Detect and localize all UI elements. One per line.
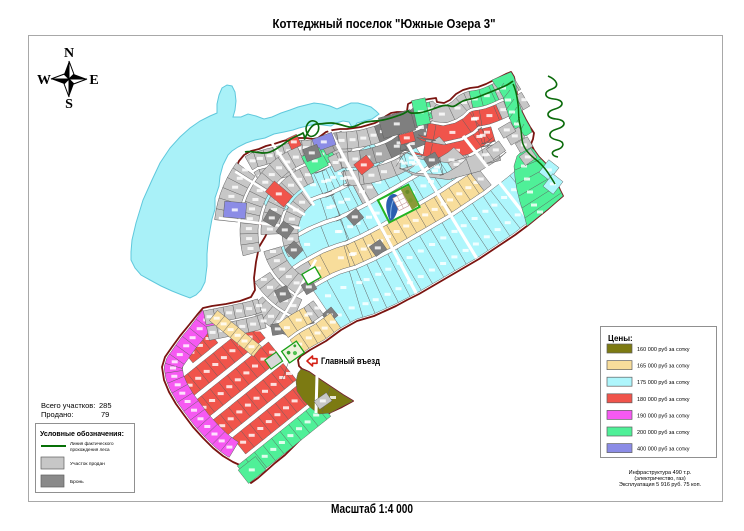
svg-text:S: S (65, 97, 73, 112)
svg-text:Всего участков:: Всего участков: (41, 401, 95, 410)
svg-text:200 000 руб за сотку: 200 000 руб за сотку (637, 430, 690, 436)
svg-text:79: 79 (101, 410, 109, 419)
svg-text:285: 285 (99, 401, 112, 410)
svg-text:Линия фактического: Линия фактического (70, 441, 114, 446)
svg-text:Главный въезд: Главный въезд (321, 356, 380, 367)
svg-text:180 000 руб за сотку: 180 000 руб за сотку (637, 397, 690, 403)
svg-text:165 000 руб за сотку: 165 000 руб за сотку (637, 364, 690, 370)
svg-text:W: W (37, 73, 51, 88)
svg-text:Условные обозначения:: Условные обозначения: (40, 430, 124, 438)
svg-text:прохождения леса: прохождения леса (70, 447, 110, 452)
svg-text:190 000 руб за сотку: 190 000 руб за сотку (637, 413, 690, 419)
svg-text:N: N (64, 46, 74, 61)
svg-text:Масштаб 1:4 000: Масштаб 1:4 000 (331, 502, 413, 516)
svg-text:Продано:: Продано: (41, 410, 74, 419)
svg-text:160 000 руб за сотку: 160 000 руб за сотку (637, 347, 690, 353)
svg-text:Цены:: Цены: (608, 334, 633, 343)
svg-text:Коттеджный поселок "Южные Озер: Коттеджный поселок "Южные Озера 3" (273, 16, 496, 31)
svg-text:Участок продан: Участок продан (70, 461, 105, 467)
svg-text:175 000 руб за сотку: 175 000 руб за сотку (637, 380, 690, 386)
svg-text:E: E (89, 73, 98, 88)
svg-text:Бронь: Бронь (70, 479, 84, 485)
svg-text:400 000 руб за сотку: 400 000 руб за сотку (637, 447, 690, 453)
svg-text:Эксплуатация 5 916 руб. 75 коп: Эксплуатация 5 916 руб. 75 коп. (619, 482, 702, 488)
